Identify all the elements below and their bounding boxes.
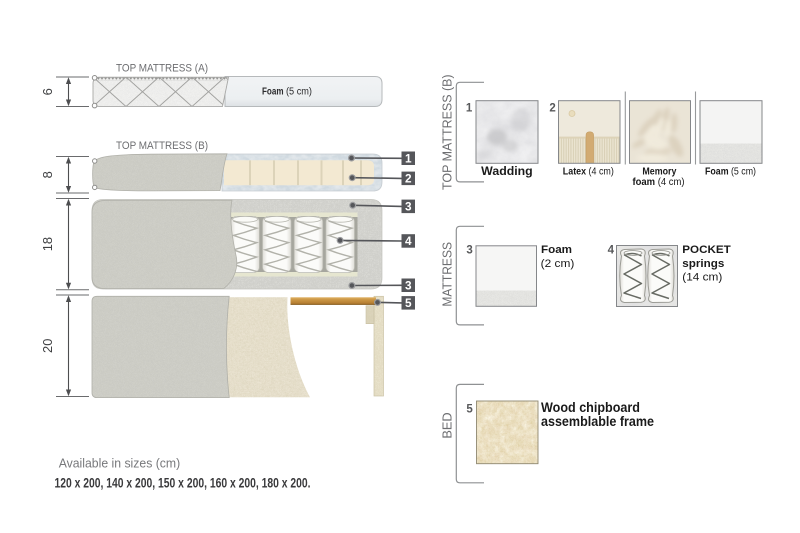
- svg-text:120 x 200, 140 x 200, 150 x 20: 120 x 200, 140 x 200, 150 x 200, 160 x 2…: [55, 476, 311, 491]
- svg-text:TOP MATTRESS (B): TOP MATTRESS (B): [116, 140, 208, 152]
- svg-text:BED: BED: [439, 412, 454, 438]
- svg-text:Foam: Foam: [262, 86, 284, 97]
- svg-text:Available in sizes (cm): Available in sizes (cm): [59, 456, 181, 471]
- svg-text:TOP MATTRESS (A): TOP MATTRESS (A): [116, 63, 208, 75]
- svg-text:Wood chipboard: Wood chipboard: [541, 400, 640, 415]
- svg-text:Foam (5 cm): Foam (5 cm): [705, 167, 756, 178]
- svg-text:POCKET: POCKET: [682, 244, 731, 256]
- svg-text:MATTRESS: MATTRESS: [439, 242, 454, 307]
- svg-text:(14 cm): (14 cm): [682, 272, 722, 284]
- svg-text:4: 4: [405, 234, 412, 248]
- svg-text:2: 2: [549, 103, 555, 115]
- svg-text:4: 4: [608, 245, 615, 257]
- svg-text:20: 20: [40, 339, 55, 353]
- svg-text:1: 1: [466, 103, 473, 115]
- svg-text:8: 8: [40, 171, 55, 178]
- svg-text:TOP MATTRESS (B): TOP MATTRESS (B): [439, 74, 454, 190]
- svg-text:3: 3: [466, 245, 472, 257]
- svg-text:Wadding: Wadding: [481, 164, 533, 178]
- svg-text:springs: springs: [682, 258, 724, 270]
- svg-text:assemblable frame: assemblable frame: [541, 414, 654, 429]
- svg-text:(5 cm): (5 cm): [286, 86, 312, 97]
- svg-text:5: 5: [466, 404, 473, 416]
- svg-text:foam (4 cm): foam (4 cm): [633, 177, 685, 188]
- svg-text:(2 cm): (2 cm): [541, 258, 575, 270]
- svg-text:6: 6: [40, 88, 55, 95]
- svg-text:Foam: Foam: [541, 244, 572, 256]
- svg-text:3: 3: [405, 279, 412, 293]
- svg-text:1: 1: [405, 152, 412, 166]
- svg-text:Latex (4 cm): Latex (4 cm): [563, 167, 614, 178]
- svg-text:5: 5: [405, 296, 412, 310]
- svg-text:2: 2: [405, 172, 412, 186]
- svg-text:18: 18: [40, 237, 55, 251]
- svg-text:3: 3: [405, 200, 412, 214]
